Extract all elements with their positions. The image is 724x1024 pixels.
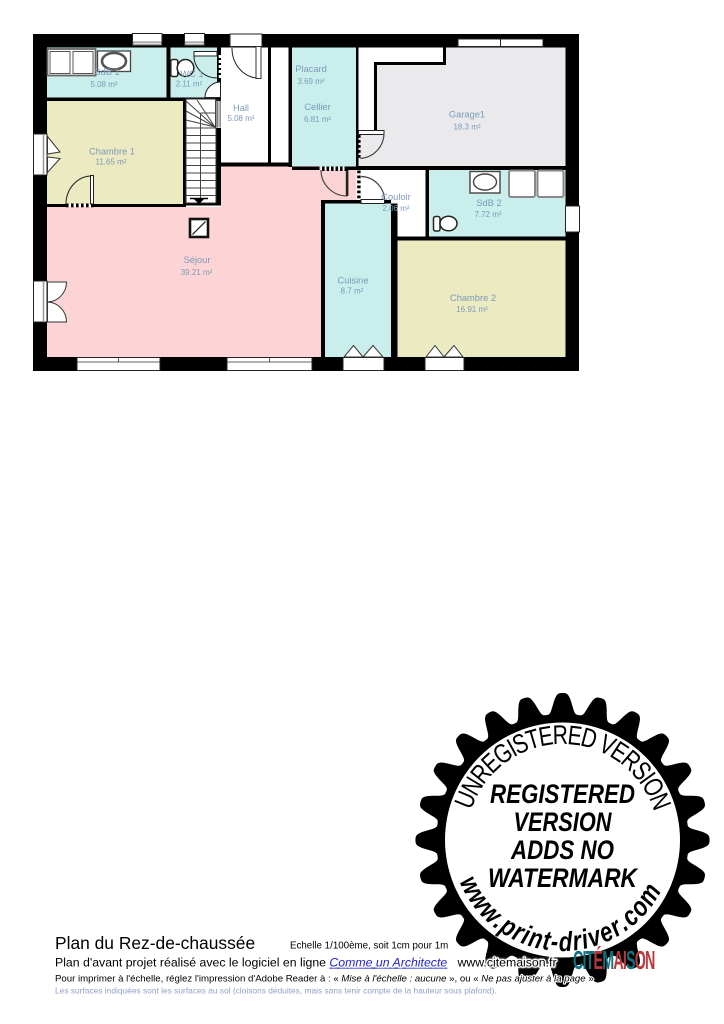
svg-text:Cuisine: Cuisine — [337, 276, 368, 286]
svg-text:3.69 m²: 3.69 m² — [297, 77, 324, 86]
svg-text:Chambre 1: Chambre 1 — [89, 147, 135, 157]
svg-text:Cellier: Cellier — [304, 102, 330, 112]
svg-text:5.08 m²: 5.08 m² — [227, 114, 254, 123]
svg-text:Plan du Rez-de-chaussée: Plan du Rez-de-chaussée — [55, 933, 255, 953]
svg-text:Placard: Placard — [295, 64, 327, 74]
svg-text:Chambre 2: Chambre 2 — [450, 293, 496, 303]
svg-text:SdB 1: SdB 1 — [94, 67, 119, 77]
svg-text:Pour imprimer à l'échelle, rég: Pour imprimer à l'échelle, réglez l'impr… — [55, 974, 594, 985]
svg-text:2.11 m²: 2.11 m² — [176, 80, 203, 89]
svg-text:Echelle 1/100ème, soit 1cm pou: Echelle 1/100ème, soit 1cm pour 1m — [290, 941, 448, 952]
svg-text:WC 1: WC 1 — [180, 69, 203, 79]
svg-text:VERSION: VERSION — [514, 807, 612, 837]
svg-text:SdB 2: SdB 2 — [476, 198, 501, 208]
svg-text:Garage1: Garage1 — [449, 110, 485, 120]
svg-text:11.65 m²: 11.65 m² — [96, 158, 127, 167]
svg-text:Les surfaces indiquées sont le: Les surfaces indiquées sont les surfaces… — [55, 986, 497, 996]
svg-text:7.72 m²: 7.72 m² — [474, 210, 501, 219]
svg-text:CITÉMAISON: CITÉMAISON — [573, 947, 655, 976]
svg-text:6.81 m²: 6.81 m² — [304, 115, 331, 124]
svg-text:18.3 m²: 18.3 m² — [453, 123, 480, 132]
svg-text:Couloir: Couloir — [381, 192, 410, 202]
svg-text:Séjour: Séjour — [184, 255, 211, 265]
svg-text:39.21 m²: 39.21 m² — [181, 268, 213, 277]
svg-text:8.7 m²: 8.7 m² — [341, 287, 364, 296]
svg-text:REGISTERED: REGISTERED — [490, 779, 635, 809]
svg-text:2.06 m²: 2.06 m² — [382, 204, 409, 213]
svg-text:16.91 m²: 16.91 m² — [456, 305, 488, 314]
svg-text:ADDS NO: ADDS NO — [510, 835, 614, 865]
svg-text:5.08 m²: 5.08 m² — [90, 80, 117, 89]
svg-text:WATERMARK: WATERMARK — [488, 863, 639, 893]
svg-text:Plan d'avant projet réalisé av: Plan d'avant projet réalisé avec le logi… — [55, 956, 557, 970]
svg-text:Hall: Hall — [233, 103, 249, 113]
